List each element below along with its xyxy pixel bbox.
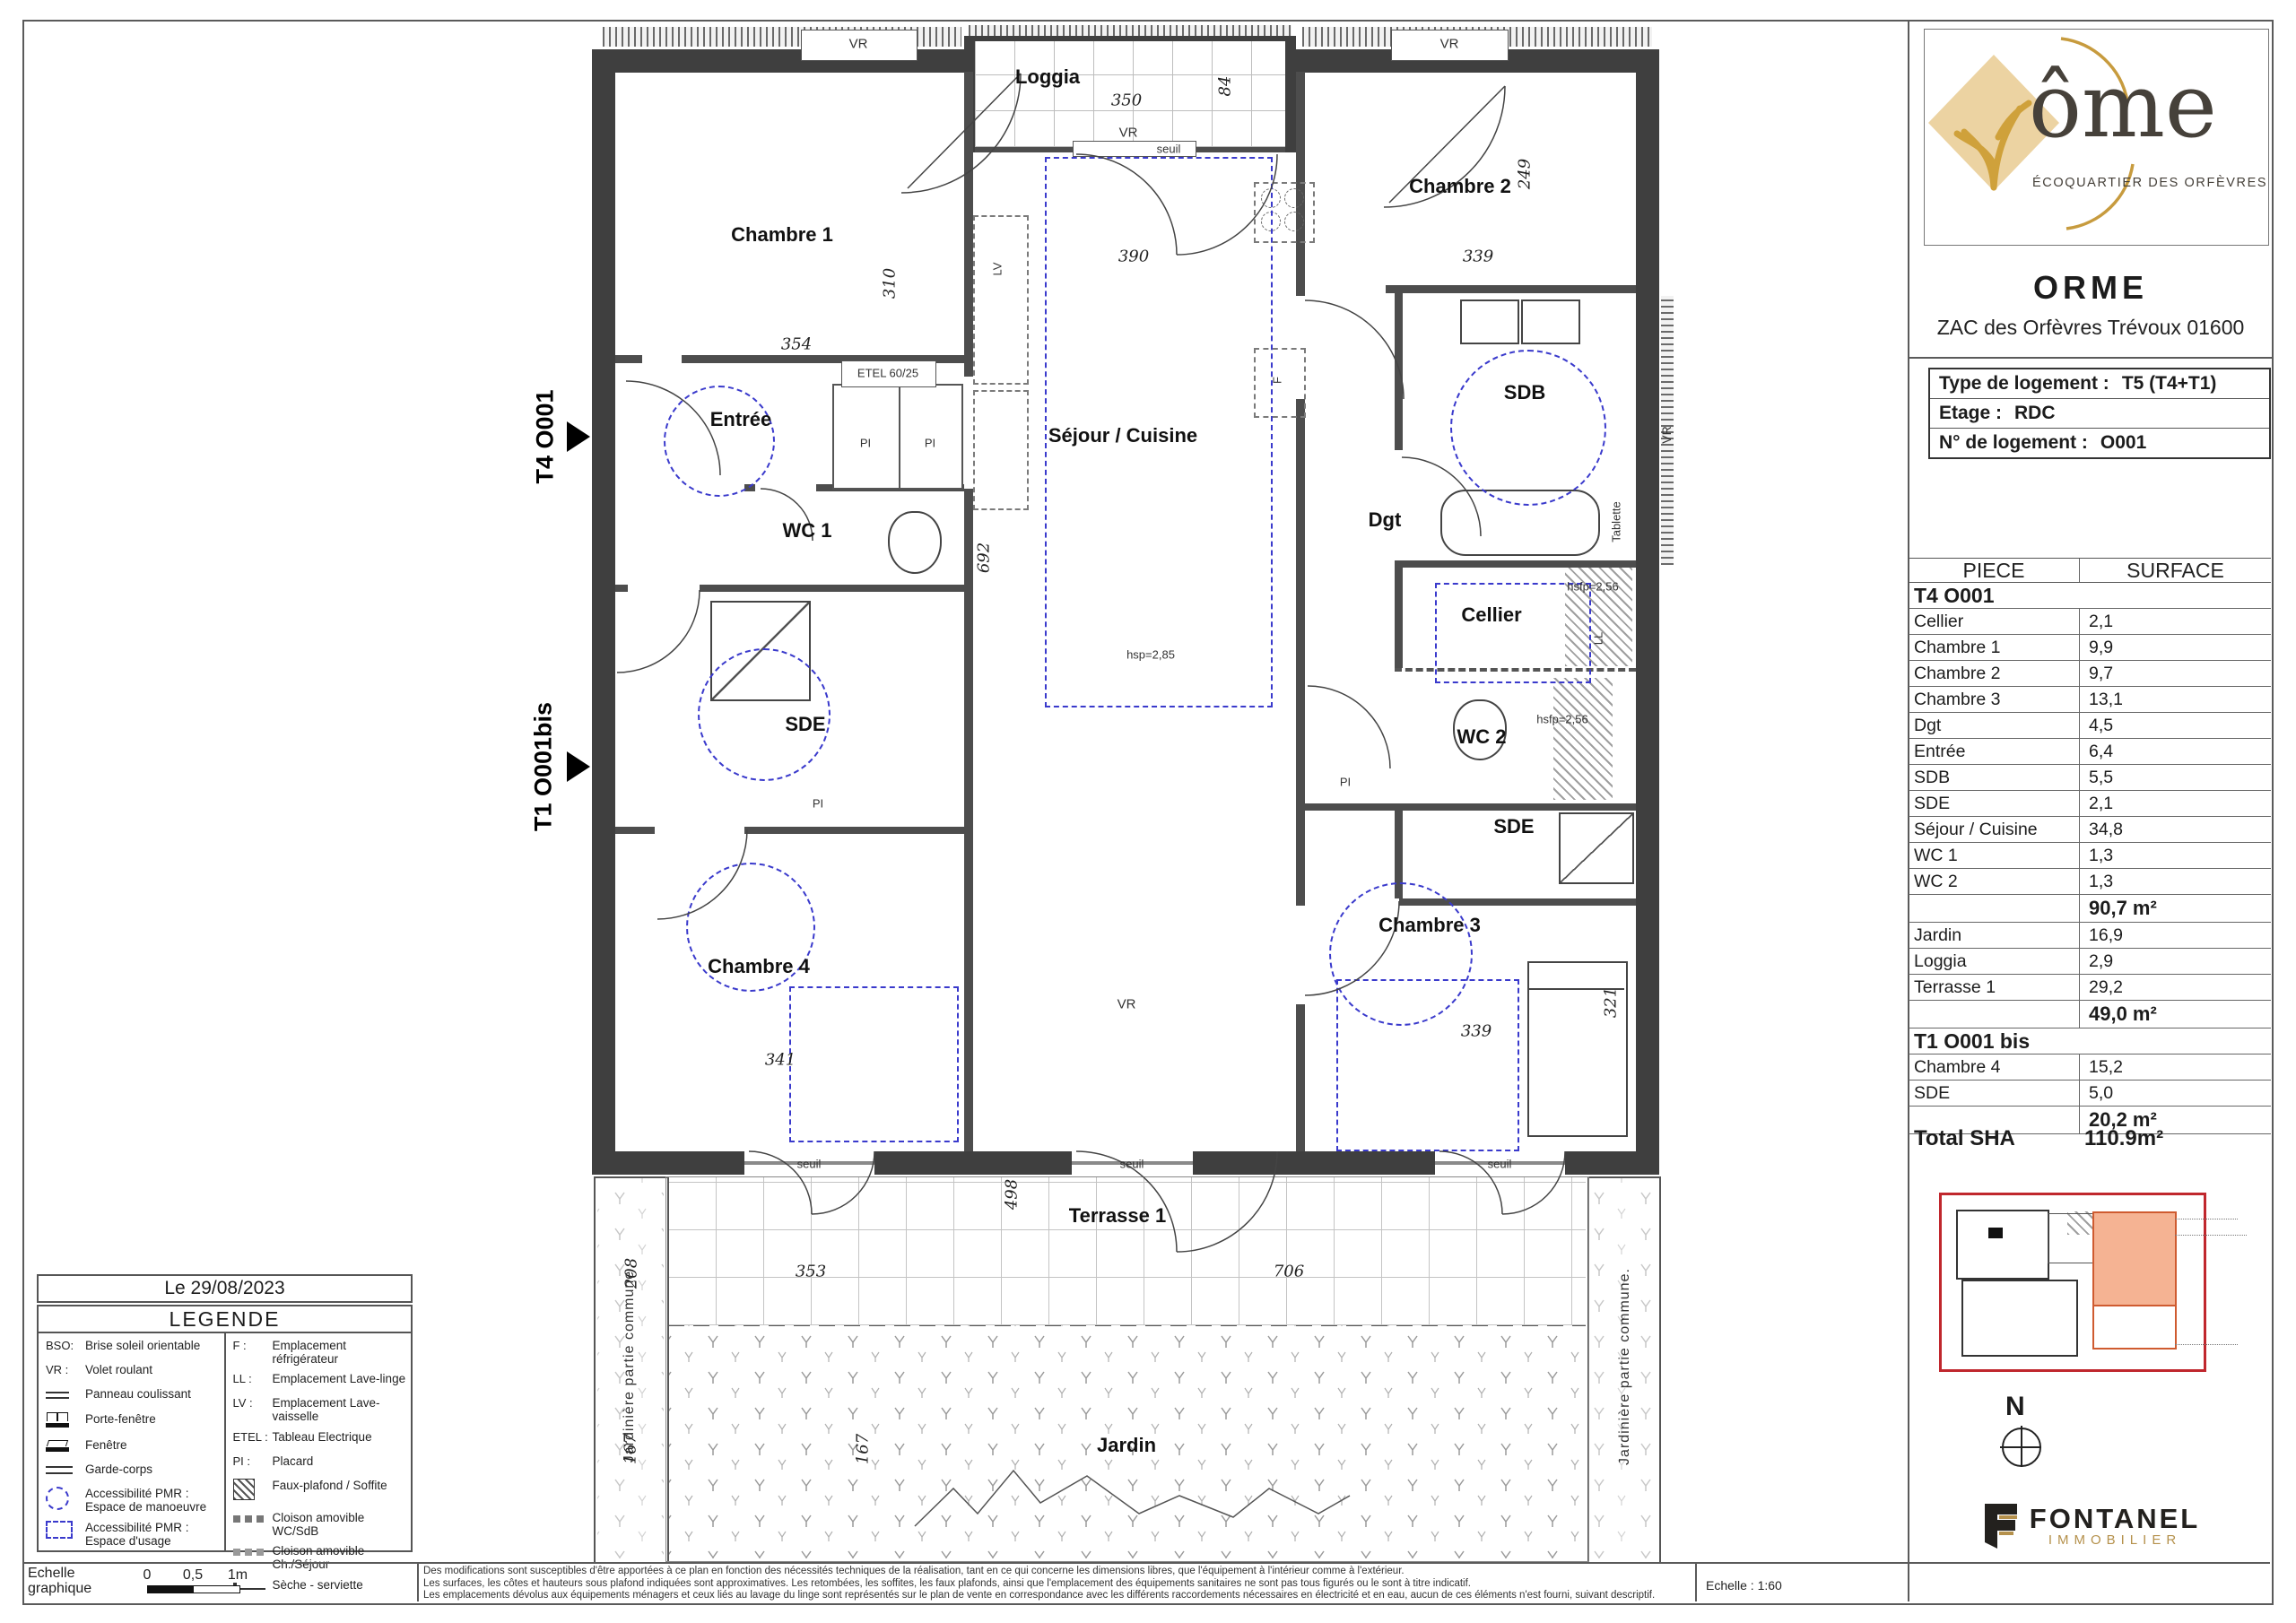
cell-piece: Cellier	[1909, 609, 2079, 634]
total-sha-label: Total SHA	[1909, 1126, 2084, 1151]
plan-label: 390	[1118, 247, 1149, 266]
plan-label: ETEL 60/25	[857, 367, 918, 380]
legend-abbr: F :	[233, 1337, 273, 1352]
plan-label: hsfp=2,56	[1567, 580, 1618, 594]
ch-icon	[233, 1509, 273, 1527]
plan-label: Dgt	[1369, 508, 1402, 532]
scale-tick-1m: 1m	[228, 1567, 248, 1584]
plan-label: PI	[1340, 776, 1351, 789]
footer-cell-divider	[417, 1562, 419, 1601]
pf-icon	[46, 1410, 85, 1432]
table-row: Chambre 313,1	[1909, 687, 2271, 713]
plan-label: 310	[881, 268, 900, 299]
legend-label: Emplacement Lave-linge	[273, 1370, 406, 1385]
minimap-leader	[2175, 1235, 2247, 1236]
minimap-leader	[2175, 1344, 2238, 1345]
legend-left-column: BSO:Brise soleil orientableVR :Volet rou…	[39, 1333, 224, 1550]
cell-surface: 9,9	[2079, 635, 2271, 660]
legend-label: Faux-plafond / Soffite	[273, 1477, 387, 1492]
plan-label: WC 2	[1457, 725, 1507, 749]
plan-label: LL	[1592, 632, 1605, 645]
graphic-scale: Echellegraphique 0 0,5 1m	[24, 1564, 417, 1601]
legend-label: Brise soleil orientable	[85, 1337, 200, 1352]
disclaimer-line: Les emplacements dévolus aux équipements…	[423, 1590, 1679, 1602]
plan-label: hsp=2,85	[1126, 648, 1175, 662]
cell-piece: Séjour / Cuisine	[1909, 817, 2079, 842]
plan-label: seuil	[1488, 1158, 1512, 1171]
table-row: WC 11,3	[1909, 843, 2271, 869]
cell-surface: 1,3	[2079, 869, 2271, 894]
info-row: Type de logement :T5 (T4+T1)	[1930, 369, 2269, 398]
legend-item: F :Emplacement réfrigérateur	[233, 1337, 412, 1366]
legend-item: VR :Volet roulant	[46, 1361, 224, 1381]
unit-tag: T1 O001bis	[530, 702, 558, 831]
cell-piece: WC 2	[1909, 869, 2079, 894]
plan-label: 249	[1516, 159, 1535, 189]
cell-surface: 34,8	[2079, 817, 2271, 842]
cell-surface: 9,7	[2079, 661, 2271, 686]
cell-piece: Chambre 2	[1909, 661, 2079, 686]
legend-abbr: LV :	[233, 1394, 273, 1410]
legend-item: Porte-fenêtre	[46, 1410, 224, 1432]
plan-label: Cellier	[1461, 603, 1521, 627]
info-row: N° de logement :O001	[1930, 428, 2269, 457]
cell-piece: SDE	[1909, 791, 2079, 816]
plan-label: Séjour / Cuisine	[1048, 424, 1197, 447]
fontanel-icon	[1979, 1502, 2021, 1550]
legend-label: Porte-fenêtre	[85, 1410, 156, 1426]
plan-label: 84	[1216, 76, 1235, 97]
info-value: O001	[2100, 432, 2146, 454]
surface-table-header: PIECE SURFACE	[1909, 558, 2271, 583]
cell-piece	[1909, 1001, 2079, 1028]
plan-label: LV	[991, 263, 1004, 276]
compass-icon	[2002, 1428, 2041, 1467]
legend-item: BSO:Brise soleil orientable	[46, 1337, 224, 1357]
plan-label: Chambre 1	[731, 223, 833, 247]
legend-right-column: F :Emplacement réfrigérateurLL :Emplacem…	[224, 1333, 412, 1550]
plan-label: PI	[813, 797, 823, 811]
info-row: Etage :RDC	[1930, 398, 2269, 428]
plan-label: PI	[925, 437, 935, 450]
plan-label: F	[1271, 377, 1284, 384]
minimap-highlight-unit	[2092, 1211, 2177, 1306]
legend-label: Emplacement réfrigérateur	[273, 1337, 412, 1366]
table-row: Jardin16,9	[1909, 923, 2271, 949]
table-row: Dgt4,5	[1909, 713, 2271, 739]
scale-bar-segment	[193, 1585, 240, 1593]
cell-surface: 1,3	[2079, 843, 2271, 868]
plan-label: Entrée	[710, 408, 771, 431]
cell-surface: 15,2	[2079, 1055, 2271, 1080]
cell-surface: 16,9	[2079, 923, 2271, 948]
gc-icon	[46, 1461, 85, 1479]
table-row: SDE2,1	[1909, 791, 2271, 817]
table-section-row: T4 O001	[1909, 583, 2271, 609]
plan-label: Chambre 4	[708, 955, 810, 978]
plan-label: 341	[765, 1051, 796, 1070]
plan-label: 498	[1003, 1179, 1022, 1210]
info-label: N° de logement :	[1939, 432, 2088, 454]
cell-surface: 2,9	[2079, 949, 2271, 974]
table-row: Loggia2,9	[1909, 949, 2271, 975]
plan-label: 339	[1461, 1022, 1492, 1041]
drawing-scale: Echelle : 1:60	[1706, 1578, 1782, 1593]
building-title: ORME	[1908, 269, 2274, 307]
cell-surface: 13,1	[2079, 687, 2271, 712]
disclaimer-line: Des modifications sont susceptibles d'êt…	[423, 1566, 1679, 1578]
cell-surface: 90,7 m²	[2079, 895, 2271, 922]
info-label: Etage :	[1939, 403, 2002, 424]
plan-label: 692	[975, 542, 994, 573]
ome-wordmark: ôme	[2029, 63, 2217, 151]
scale-tick-0: 0	[143, 1567, 152, 1584]
plan-label: Chambre 2	[1409, 175, 1511, 198]
cell-surface: 49,0 m²	[2079, 1001, 2271, 1028]
table-row: Terrasse 129,2	[1909, 975, 2271, 1001]
plan-label: Jardinière partie commune.	[1617, 1268, 1633, 1465]
plan-label: PI	[860, 437, 871, 450]
legend-label: Tableau Electrique	[273, 1428, 372, 1444]
legend-label: Accessibilité PMR :Espace de manoeuvre	[85, 1485, 206, 1514]
cell-surface: 2,1	[2079, 609, 2271, 634]
plan-label: Jardinière partie commune	[622, 1271, 638, 1462]
table-row: Chambre 19,9	[1909, 635, 2271, 661]
legend-item: Panneau coulissant	[46, 1385, 224, 1405]
fontanel-subtitle: IMMOBILIER	[2030, 1532, 2200, 1548]
plan-label: 321	[1602, 987, 1621, 1018]
hatch-icon	[233, 1477, 273, 1505]
fen-icon	[46, 1436, 85, 1456]
cell-surface: 6,4	[2079, 739, 2271, 764]
cell-piece: Chambre 1	[1909, 635, 2079, 660]
pmrr-icon	[46, 1519, 85, 1543]
minimap-highlight-terrace	[2092, 1303, 2177, 1350]
cg-icon	[233, 1542, 273, 1560]
compass-north-label: N	[2005, 1392, 2025, 1422]
plan-label: Terrasse 1	[1069, 1204, 1166, 1228]
table-row: SDB5,5	[1909, 765, 2271, 791]
cell-piece: Jardin	[1909, 923, 2079, 948]
plan-label: 339	[1463, 247, 1493, 266]
surface-table: PIECE SURFACE T4 O001Cellier2,1Chambre 1…	[1909, 558, 2271, 1134]
plan-label: SDE	[1493, 815, 1534, 838]
footer-cell-divider	[1695, 1562, 1697, 1601]
legend-title: LEGENDE	[39, 1306, 411, 1333]
legend-abbr: ETEL :	[233, 1428, 273, 1444]
disclaimer-line: Les surfaces, les côtes et hauteurs sous…	[423, 1578, 1679, 1591]
plan-label: 353	[796, 1263, 826, 1281]
legend-item: Accessibilité PMR :Espace d'usage	[46, 1519, 224, 1548]
minimap-building	[1961, 1280, 2078, 1357]
legend-item: Cloison amovible WC/SdB	[233, 1509, 412, 1538]
plan-label: VR	[1659, 426, 1674, 443]
plan-label: SDE	[785, 713, 825, 736]
table-row: Chambre 415,2	[1909, 1055, 2271, 1081]
disclaimer-text: Des modifications sont susceptibles d'êt…	[423, 1566, 1679, 1602]
table-row: SDE5,0	[1909, 1081, 2271, 1107]
plan-label: seuil	[797, 1158, 822, 1171]
plan-label: Chambre 3	[1378, 914, 1481, 937]
table-row: Chambre 29,7	[1909, 661, 2271, 687]
pmrc-icon	[46, 1485, 85, 1515]
plan-label: Loggia	[1015, 65, 1080, 89]
cell-piece: Terrasse 1	[1909, 975, 2079, 1000]
cell-surface: 29,2	[2079, 975, 2271, 1000]
cell-piece: SDE	[1909, 1081, 2079, 1106]
cell-piece	[1909, 895, 2079, 922]
cell-piece: Chambre 3	[1909, 687, 2079, 712]
cell-surface: 2,1	[2079, 791, 2271, 816]
legend-abbr: VR :	[46, 1361, 85, 1376]
legend-label: Fenêtre	[85, 1436, 127, 1452]
table-row: WC 21,3	[1909, 869, 2271, 895]
plan-label: VR	[1119, 126, 1138, 141]
legend-abbr: BSO:	[46, 1337, 85, 1352]
building-address: ZAC des Orfèvres Trévoux 01600	[1908, 316, 2274, 340]
table-section-row: T1 O001 bis	[1909, 1028, 2271, 1055]
legend: LEGENDE BSO:Brise soleil orientableVR :V…	[37, 1305, 413, 1552]
fontanel-logo: FONTANEL IMMOBILIER	[1937, 1499, 2242, 1553]
legend-abbr: LL :	[233, 1370, 273, 1385]
unit-entry-arrow	[567, 421, 590, 452]
legend-abbr: PI :	[233, 1453, 273, 1468]
total-sha-row: Total SHA 110.9m²	[1909, 1126, 2271, 1151]
total-sha-value: 110.9m²	[2084, 1126, 2163, 1151]
ome-subtitle: ÉCOQUARTIER DES ORFÈVRES	[2032, 176, 2267, 190]
graphic-scale-label: Echellegraphique	[28, 1566, 91, 1596]
plan-label: 350	[1111, 91, 1142, 110]
info-value: T5 (T4+T1)	[2122, 373, 2217, 395]
cell-piece: Entrée	[1909, 739, 2079, 764]
fontanel-name: FONTANEL	[2030, 1506, 2200, 1532]
scale-bar-segment	[147, 1585, 195, 1593]
legend-item: LL :Emplacement Lave-linge	[233, 1370, 412, 1390]
legend-item: Fenêtre	[46, 1436, 224, 1456]
cell-piece: WC 1	[1909, 843, 2079, 868]
cell-surface: 5,0	[2079, 1081, 2271, 1106]
legend-label: Accessibilité PMR :Espace d'usage	[85, 1519, 189, 1548]
legend-item: LV :Emplacement Lave-vaisselle	[233, 1394, 412, 1423]
slide-icon	[46, 1385, 85, 1403]
minimap-leader	[2175, 1219, 2238, 1219]
location-minimap	[1939, 1193, 2206, 1372]
legend-label: Cloison amovible WC/SdB	[273, 1509, 412, 1538]
cell-surface: 4,5	[2079, 713, 2271, 738]
footer-divider	[22, 1562, 2270, 1564]
minimap-stair	[2067, 1211, 2092, 1235]
info-label: Type de logement :	[1939, 373, 2109, 395]
table-row: Cellier2,1	[1909, 609, 2271, 635]
plan-label: 354	[781, 335, 812, 354]
table-row: Séjour / Cuisine34,8	[1909, 817, 2271, 843]
plan-label: hsfp=2,56	[1536, 713, 1587, 726]
plan-label: Jardin	[1097, 1434, 1156, 1457]
legend-item: PI :Placard	[233, 1453, 412, 1472]
cell-piece: Loggia	[1909, 949, 2079, 974]
table-row: 49,0 m²	[1909, 1001, 2271, 1028]
garden-squiggle	[915, 1471, 1350, 1526]
legend-item: Faux-plafond / Soffite	[233, 1477, 412, 1505]
col-surface: SURFACE	[2080, 559, 2271, 582]
legend-item: Accessibilité PMR :Espace de manoeuvre	[46, 1485, 224, 1515]
cell-piece: Chambre 4	[1909, 1055, 2079, 1080]
legend-label: Emplacement Lave-vaisselle	[273, 1394, 412, 1423]
plan-label: seuil	[1157, 143, 1181, 156]
date-box: Le 29/08/2023	[37, 1274, 413, 1303]
minimap-core	[1988, 1228, 2003, 1238]
plan-label: VR	[849, 37, 868, 52]
cell-surface: 5,5	[2079, 765, 2271, 790]
cell-piece: T4 O001	[1909, 583, 2271, 608]
table-row: 90,7 m²	[1909, 895, 2271, 923]
plan-label: 167	[854, 1434, 873, 1464]
plan-label: SDB	[1504, 381, 1545, 404]
legend-item: Garde-corps	[46, 1461, 224, 1480]
legend-item: ETEL :Tableau Electrique	[233, 1428, 412, 1448]
unit-tag: T4 O001	[532, 389, 560, 483]
cell-piece: T1 O001 bis	[1909, 1028, 2271, 1054]
legend-label: Garde-corps	[85, 1461, 152, 1476]
plan-label: WC 1	[783, 519, 832, 542]
legend-label: Placard	[273, 1453, 314, 1468]
info-value: RDC	[2014, 403, 2056, 424]
cell-piece: Dgt	[1909, 713, 2079, 738]
minimap-building	[1956, 1210, 2049, 1280]
col-piece: PIECE	[1909, 559, 2080, 582]
plan-label: seuil	[1120, 1158, 1144, 1171]
unit-entry-arrow	[567, 751, 590, 782]
sidebar-separator	[1908, 357, 2274, 359]
plan-label: Tablette	[1610, 501, 1623, 542]
plan-label: 706	[1274, 1263, 1304, 1281]
legend-label: Volet roulant	[85, 1361, 152, 1376]
plan-label: VR	[1118, 997, 1136, 1012]
plan-label: VR	[1440, 37, 1459, 52]
cell-piece: SDB	[1909, 765, 2079, 790]
scale-tick-05: 0,5	[183, 1567, 203, 1584]
legend-label: Panneau coulissant	[85, 1385, 191, 1401]
floorplan-sheet: { "plan": { "unit_tags": [ {"text":"T4 O…	[0, 0, 2296, 1623]
unit-info-box: Type de logement :T5 (T4+T1)Etage :RDCN°…	[1928, 368, 2271, 459]
table-row: Entrée6,4	[1909, 739, 2271, 765]
